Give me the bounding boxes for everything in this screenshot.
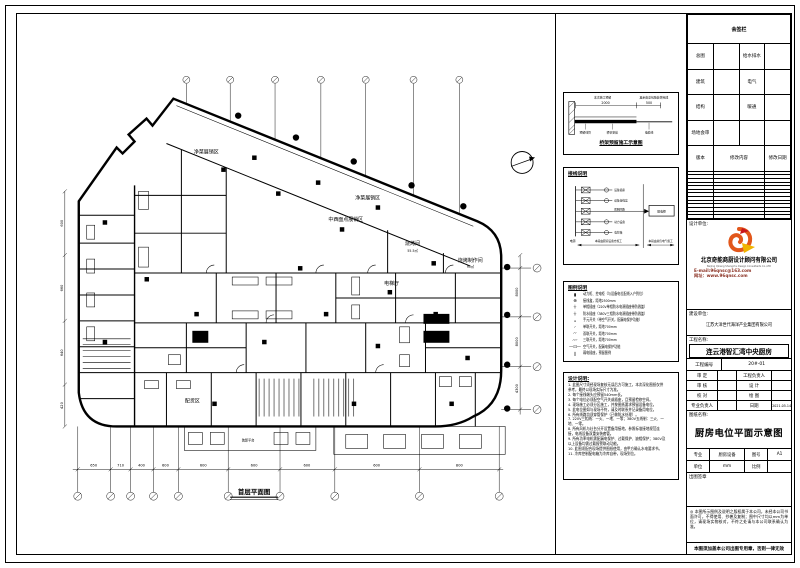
svg-text:本段由总包电气施工: 本段由总包电气施工 (649, 239, 673, 243)
svg-text:400: 400 (138, 463, 146, 467)
signature-table: 会签栏 总图给水排水 建筑电气 结构暖通 场地会审 版本修改内容修改日期 (687, 14, 791, 220)
company-logo (722, 227, 756, 255)
hand-switch-icon: ⌅ (567, 318, 583, 323)
svg-text:600: 600 (200, 463, 208, 467)
stamp-area: 出图签章 (687, 473, 791, 507)
dimension-lines (63, 189, 522, 471)
approval-row: 校 对 绘 图 (687, 391, 791, 401)
company-website: 网址：www.96qnsc.com (687, 273, 791, 279)
note-item: 11. 冷库控制配电箱为冷库自带，现场到位。 (568, 452, 666, 457)
project-name-section: 工程名称: 连云港智汇湾中央厨房 (687, 336, 791, 359)
system-title: 接线说明 (564, 168, 678, 177)
legend-box: 图例说明 ▮动力柜、控电柜（与设备电位配线入户到位） ⊕接线盒，距地2500mm… (563, 281, 679, 362)
svg-text:配电柜: 配电柜 (657, 209, 666, 214)
breaker-icon: —⊡— (567, 344, 583, 349)
room-label: 烧烤间 (405, 240, 420, 247)
junction-box-icon: ⊕ (567, 298, 583, 303)
legend-item: ∥弱电插座，预留图例 (564, 350, 678, 357)
design-firm-label: 设计单位: (687, 220, 791, 227)
svg-text:600: 600 (60, 219, 64, 227)
notes-title: 设计说明: (564, 373, 678, 382)
detail-title: 桥架预留施工示意图 (564, 139, 678, 146)
approval-row: 审 核 设 计 (687, 381, 791, 391)
validity-notice: 本图须加盖本公司出图专用章，否则一律无效 (687, 543, 791, 554)
room-area: 55.5㎡ (407, 248, 418, 253)
loading-platforms (184, 426, 505, 454)
switch-2gang-icon: ◜◜ (567, 331, 583, 336)
svg-text:2000: 2000 (601, 101, 609, 105)
svg-text:800: 800 (456, 463, 464, 467)
svg-text:电源: 电源 (570, 238, 576, 243)
panel-symbol-icon: ▮ (567, 292, 583, 297)
socket-220v-icon: ⏚ (567, 304, 583, 310)
svg-text:8000: 8000 (515, 287, 519, 297)
svg-text:600: 600 (304, 463, 312, 467)
drawing-frame: 650 710 400 600 600 600 600 600 800 600 … (16, 13, 792, 555)
svg-text:500: 500 (646, 101, 652, 105)
sheet-name-section: 图纸名称: 厨房电位平面示意图 (687, 411, 791, 449)
room-label: 装卸平台 (242, 437, 255, 442)
tray-detail-drawing: 本次施工预留 其余由总包随装饰完成 2000 500 预留线管 桥架安装 电缆线 (564, 93, 678, 139)
floor-plan-area: 650 710 400 600 600 600 600 600 800 600 … (17, 14, 555, 554)
plan-title: 首层平面图 (238, 487, 271, 496)
svg-text:电缆线: 电缆线 (645, 129, 654, 134)
room-label: 净菜展销区 (355, 194, 380, 201)
legend-title: 图例说明 (564, 282, 678, 291)
sheet-spec-row: 单位mm 比例 (687, 461, 791, 473)
svg-text:桥架安装: 桥架安装 (607, 129, 619, 134)
room-label: 电梯厅 (384, 280, 399, 287)
client-section: 建设单位: 江苏大洋世代海洋产业集团有限公司 (687, 310, 791, 336)
notes-column: 本次施工预留 其余由总包随装饰完成 2000 500 预留线管 桥架安装 电缆线… (555, 14, 687, 554)
client-name: 江苏大洋世代海洋产业集团有限公司 (694, 321, 783, 328)
svg-text:其余由总包随装饰完成: 其余由总包随装饰完成 (639, 95, 668, 100)
copyright-disclaimer: ◎ 本图所示图例及说明之版权属于本公司，未经本公司书面许可，不得使用、抄袭及复制… (687, 507, 791, 543)
svg-text:640: 640 (60, 349, 64, 357)
svg-text:照明回路: 照明回路 (614, 207, 625, 211)
project-no-row: 工程编号 20#-01 (687, 359, 791, 371)
svg-text:4300: 4300 (515, 383, 519, 393)
drawing-sheet: 650 710 400 600 600 600 600 600 800 600 … (5, 5, 795, 563)
sheet-name-label: 图纸名称: (687, 411, 791, 418)
power-panel-symbols (103, 155, 470, 406)
weak-current-icon: ∥ (567, 351, 583, 356)
room-label: 净菜展销区 (194, 148, 219, 155)
notes-list: 1. 此图尺寸须经现场复核无误后方可施工，本次深化图纸仅供参考，最终以现场实际尺… (564, 382, 678, 457)
client-label: 建设单位: (687, 310, 791, 317)
svg-text:650: 650 (90, 463, 98, 467)
company-name-en: Beijing Qineng Shangchu Design Consultan… (697, 264, 780, 268)
design-notes-box: 设计说明: 1. 此图尺寸须经现场复核无误后方可施工，本次深化图纸仅供参考，最终… (563, 372, 679, 480)
tray-detail-box: 本次施工预留 其余由总包随装饰完成 2000 500 预留线管 桥架安装 电缆线… (563, 92, 679, 155)
stairs (83, 339, 354, 417)
svg-text:本次施工预留: 本次施工预留 (594, 95, 611, 100)
company-name-cn: 北京奇能商厨设计顾问有限公司 (693, 255, 785, 264)
svg-text:600: 600 (162, 463, 170, 467)
approval-row: 专业负责人 日期2021.05.14 (687, 401, 791, 411)
svg-text:710: 710 (117, 463, 125, 467)
svg-text:设备插座: 设备插座 (614, 188, 625, 192)
svg-text:420: 420 (60, 401, 64, 409)
svg-text:电控箱: 电控箱 (614, 230, 622, 234)
svg-text:600: 600 (373, 463, 381, 467)
grid-lines (74, 76, 541, 500)
room-label: 配货区 (185, 398, 200, 405)
building-outline (79, 99, 501, 427)
shafts (192, 314, 449, 343)
svg-text:660: 660 (60, 284, 64, 292)
equipment (87, 191, 472, 388)
project-name: 连云港智汇湾中央厨房 (689, 344, 789, 358)
sheet-title: 厨房电位平面示意图 (687, 425, 791, 439)
svg-text:600: 600 (251, 463, 259, 467)
approval-row: 审 定 工程负责人 (687, 371, 791, 381)
room-label: 烧烤制作间 (458, 257, 483, 264)
socket-380v-icon: ⏚ (567, 311, 583, 317)
switch-1gang-icon: ◜ (567, 325, 583, 330)
svg-text:预留线管: 预留线管 (579, 129, 591, 134)
wiring-system-box: 接线说明 电源 设备插座 设备接线盒 (563, 167, 679, 265)
design-firm-section: 设计单位: 北京奇能商厨设计顾问有限公司 Beijing Qineng Shan… (687, 220, 791, 310)
room-area: 95㎡ (467, 264, 475, 269)
svg-text:动力设备: 动力设备 (614, 220, 625, 224)
dimension-values: 650 710 400 600 600 600 600 600 800 600 … (60, 219, 519, 467)
north-arrow-icon (511, 151, 535, 173)
svg-text:设备接线盒: 设备接线盒 (614, 199, 628, 203)
svg-text:8000: 8000 (515, 337, 519, 347)
floor-plan-svg: 650 710 400 600 600 600 600 600 800 600 … (17, 14, 555, 554)
room-label: 中西面点展销区 (328, 216, 363, 223)
signature-table-title: 会签栏 (688, 15, 791, 44)
switch-3gang-icon: ◜◜◜ (567, 338, 583, 343)
svg-text:本段由厨房设备方施工: 本段由厨房设备方施工 (595, 239, 622, 243)
project-no: 20#-01 (722, 359, 791, 370)
wiring-diagram: 电源 设备插座 设备接线盒 照明回路 动力设备 (564, 177, 678, 259)
project-name-label: 工程名称: (687, 336, 791, 343)
sheet-spec-row: 专业厨房设备 图号A1 (687, 449, 791, 461)
title-block: 会签栏 总图给水排水 建筑电气 结构暖通 场地会审 版本修改内容修改日期 设计单… (687, 14, 791, 554)
project-no-label: 工程编号 (687, 359, 722, 370)
stamp-label: 出图签章 (687, 473, 791, 480)
